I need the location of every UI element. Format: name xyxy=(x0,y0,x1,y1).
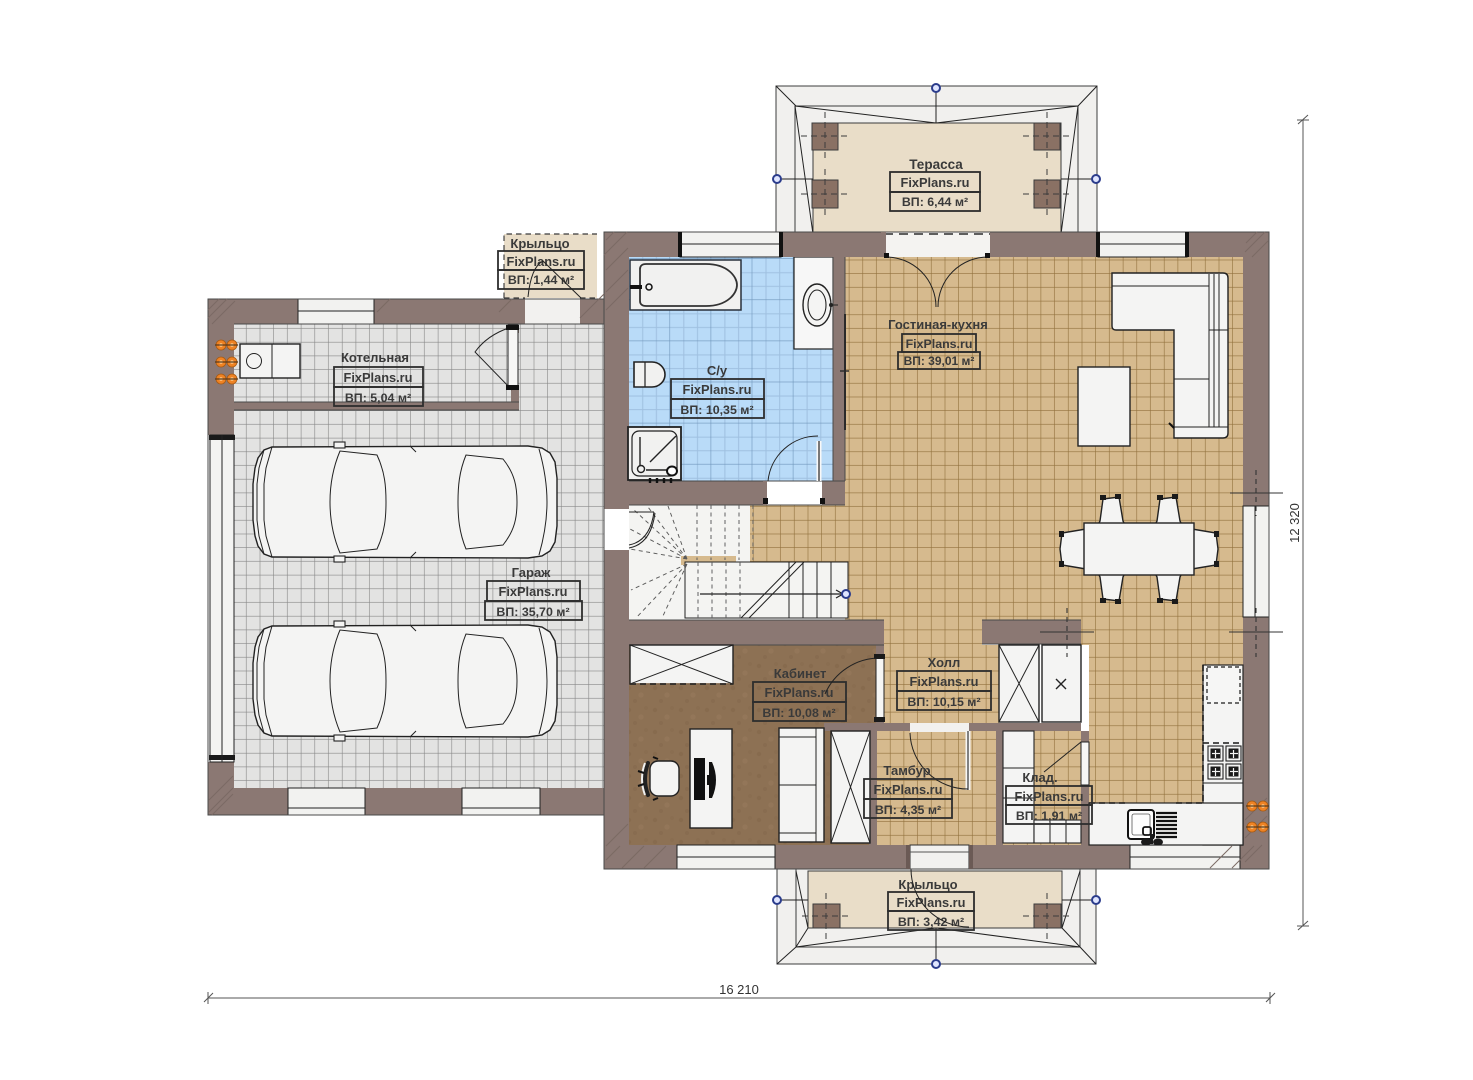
svg-text:Гостиная-кухня: Гостиная-кухня xyxy=(888,317,988,332)
svg-text:ВП: 1,91 м²: ВП: 1,91 м² xyxy=(1016,809,1082,823)
svg-text:Тамбур: Тамбур xyxy=(883,763,930,778)
svg-text:Терасса: Терасса xyxy=(909,157,963,172)
svg-text:Клад.: Клад. xyxy=(1022,770,1057,785)
svg-text:ВП: 6,44 м²: ВП: 6,44 м² xyxy=(902,195,968,209)
svg-text:FixPlans.ru: FixPlans.ru xyxy=(897,895,966,910)
svg-text:12 320: 12 320 xyxy=(1287,503,1302,543)
svg-text:FixPlans.ru: FixPlans.ru xyxy=(507,254,576,269)
svg-text:ВП: 5,04 м²: ВП: 5,04 м² xyxy=(345,391,411,405)
svg-text:FixPlans.ru: FixPlans.ru xyxy=(344,370,413,385)
svg-text:ВП: 1,44 м²: ВП: 1,44 м² xyxy=(508,273,574,287)
svg-text:16 210: 16 210 xyxy=(719,982,759,997)
svg-text:ВП: 3,42 м²: ВП: 3,42 м² xyxy=(898,915,964,929)
svg-text:ВП: 4,35 м²: ВП: 4,35 м² xyxy=(875,803,941,817)
svg-text:Холл: Холл xyxy=(928,655,961,670)
svg-text:FixPlans.ru: FixPlans.ru xyxy=(901,175,970,190)
svg-text:Крыльцо: Крыльцо xyxy=(510,236,569,251)
svg-text:Гараж: Гараж xyxy=(512,565,552,580)
svg-text:FixPlans.ru: FixPlans.ru xyxy=(906,337,973,351)
svg-text:FixPlans.ru: FixPlans.ru xyxy=(874,782,943,797)
svg-text:FixPlans.ru: FixPlans.ru xyxy=(683,382,752,397)
svg-text:ВП: 35,70 м²: ВП: 35,70 м² xyxy=(496,605,569,619)
svg-text:ВП: 10,08 м²: ВП: 10,08 м² xyxy=(762,706,835,720)
svg-text:FixPlans.ru: FixPlans.ru xyxy=(765,685,834,700)
svg-text:Крыльцо: Крыльцо xyxy=(898,877,957,892)
svg-text:ВП: 10,15 м²: ВП: 10,15 м² xyxy=(907,695,980,709)
svg-text:ВП: 10,35 м²: ВП: 10,35 м² xyxy=(680,403,753,417)
svg-text:Кабинет: Кабинет xyxy=(774,666,827,681)
svg-text:С/у: С/у xyxy=(707,363,728,378)
svg-text:FixPlans.ru: FixPlans.ru xyxy=(910,674,979,689)
svg-text:FixPlans.ru: FixPlans.ru xyxy=(499,584,568,599)
svg-text:Котельная: Котельная xyxy=(341,350,409,365)
svg-text:ВП: 39,01 м²: ВП: 39,01 м² xyxy=(904,354,975,368)
svg-text:FixPlans.ru: FixPlans.ru xyxy=(1015,789,1084,804)
